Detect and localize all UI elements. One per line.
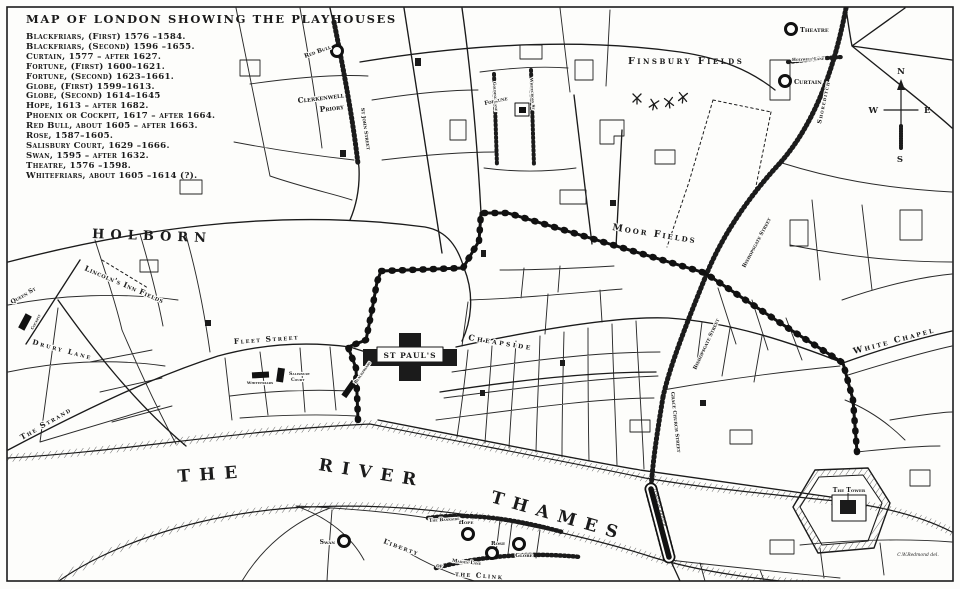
marker-whitefriars: Whitefriars <box>246 372 273 385</box>
label-st-pauls: ST PAUL'S <box>383 351 436 360</box>
label-moor-fields: Moor Fields <box>612 222 698 246</box>
marker-theatre: Theatre <box>786 24 829 35</box>
label-holywell-lane: Holywell Lane <box>792 56 825 62</box>
marker-swan: Swan <box>320 536 350 547</box>
marker-curtain-label: Curtain <box>794 78 822 86</box>
legend: MAP OF LONDON SHOWING THE PLAYHOUSES Bla… <box>26 12 326 182</box>
marker-whitefriars-label: Whitefriars <box>246 380 273 385</box>
label-river-the: THE <box>177 462 247 487</box>
label-river-river: RIVER <box>317 455 426 492</box>
label-liberty: Liberty <box>382 536 420 557</box>
marker-fortune: Fortune <box>484 96 529 116</box>
label-holborn: HOLBORN <box>92 227 212 246</box>
marker-globe-label: Globe <box>515 553 532 559</box>
label-whitecross-st: Whitecross St <box>529 77 536 111</box>
label-grace-church-street: Grace Church Street <box>669 392 681 453</box>
label-the-bankside: The Bankside <box>429 516 461 524</box>
label-the-strand: The Strand <box>19 405 74 442</box>
label-finsbury-fields: Finsbury Fields <box>628 56 744 67</box>
playhouse-map: MAP OF LONDON SHOWING THE PLAYHOUSES Bla… <box>0 0 960 589</box>
marker-theatre-label: Theatre <box>800 26 829 34</box>
windmill-icon <box>664 97 673 108</box>
label-golding-lane: Golding Lane <box>492 82 499 112</box>
compass-north: N <box>897 67 905 77</box>
windmill-icon <box>633 94 641 104</box>
marker-salisbury-label-1: Salisbury <box>289 371 311 377</box>
label-lincolns-inn-fields: Lincoln's Inn Fields <box>83 264 165 306</box>
marker-phoenix-cockpit: Cockpit <box>18 313 42 331</box>
label-st-john-street: St John Street <box>359 107 371 150</box>
st-pauls-cathedral: ST PAUL'S <box>363 333 457 381</box>
label-white-chapel: White Chapel <box>851 325 936 357</box>
label-bishopsgate-street-south: Bishopsgate Street <box>692 318 721 371</box>
legend-list: Blackfriars, (First) 1576 –1584. Blackfr… <box>26 33 326 182</box>
compass-south: S <box>897 155 903 165</box>
marker-swan-label: Swan <box>320 539 336 546</box>
label-bishopsgate-street-north: Bishopsgate Street <box>741 217 772 269</box>
label-liberty-of: of <box>436 563 443 570</box>
london-bridge: LONDON BRIDGE <box>651 488 669 557</box>
city-wall <box>348 213 857 452</box>
label-cheapside: Cheapside <box>468 332 534 352</box>
map-title: MAP OF LONDON SHOWING THE PLAYHOUSES <box>26 12 326 26</box>
marker-hope: Hope <box>459 520 474 540</box>
label-drury-lane: Drury Lane <box>31 337 93 362</box>
marker-rose-label: Rose <box>491 541 505 547</box>
marker-salisbury-label-2: Court <box>291 377 305 383</box>
label-river-thames: THAMES <box>489 488 629 546</box>
compass-west: W <box>867 106 878 116</box>
marker-hope-label: Hope <box>459 520 474 526</box>
windmill-icons <box>633 93 687 111</box>
compass-east: E <box>924 106 931 116</box>
label-the-clink: the Clink <box>455 569 504 581</box>
compass-rose-icon: N S W E <box>867 67 931 165</box>
marker-curtain: Curtain <box>780 76 823 87</box>
windmill-icon <box>678 93 687 104</box>
marker-globe: Globe <box>514 539 533 560</box>
cartographer-signature: C.W.Redmond del. <box>897 552 939 558</box>
marker-salisbury-court: Salisbury Court <box>276 368 311 383</box>
label-the-tower: The Tower <box>833 487 866 494</box>
legend-entry: Whitefriars, about 1605 –1614 (?). <box>26 172 326 182</box>
windmill-icon <box>649 99 659 110</box>
